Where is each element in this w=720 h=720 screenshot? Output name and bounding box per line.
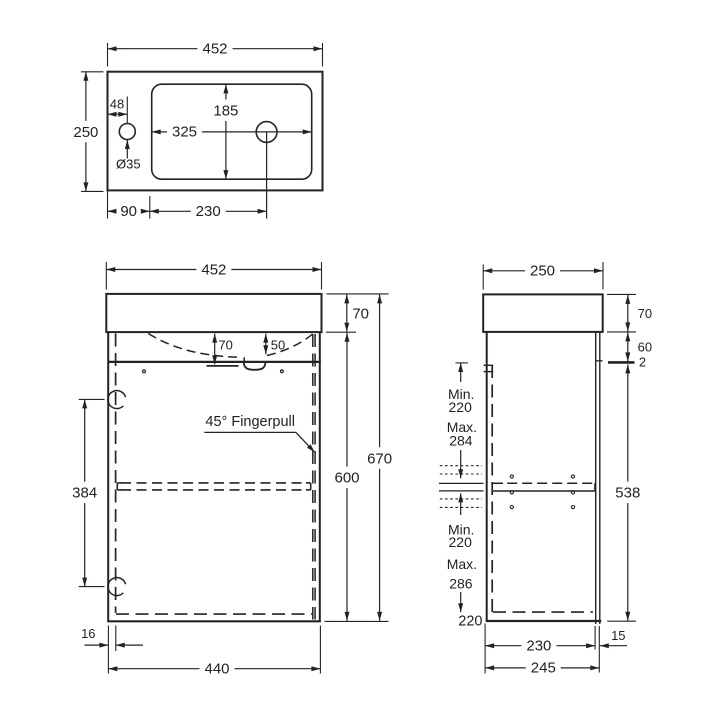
svg-text:230: 230 (196, 203, 221, 220)
svg-text:452: 452 (201, 261, 226, 278)
svg-text:440: 440 (204, 661, 229, 678)
svg-text:15: 15 (611, 628, 625, 643)
svg-text:220: 220 (449, 399, 473, 415)
svg-text:250: 250 (73, 124, 98, 141)
svg-text:60: 60 (638, 340, 652, 355)
svg-text:284: 284 (449, 433, 473, 449)
svg-text:384: 384 (72, 485, 97, 502)
svg-text:250: 250 (530, 263, 555, 280)
svg-text:230: 230 (526, 638, 551, 655)
svg-text:50: 50 (271, 338, 285, 353)
svg-text:670: 670 (367, 450, 392, 467)
svg-text:245: 245 (531, 660, 556, 677)
svg-text:16: 16 (81, 626, 95, 641)
svg-text:325: 325 (172, 124, 197, 141)
svg-text:Max.: Max. (447, 556, 477, 572)
svg-text:452: 452 (202, 41, 227, 58)
svg-text:Ø35: Ø35 (116, 157, 141, 172)
svg-text:90: 90 (120, 203, 137, 220)
svg-text:2: 2 (639, 355, 646, 370)
svg-text:70: 70 (218, 338, 232, 353)
svg-text:48: 48 (110, 97, 124, 112)
svg-text:286: 286 (449, 576, 473, 592)
svg-text:45° Fingerpull: 45° Fingerpull (205, 414, 295, 430)
svg-text:70: 70 (352, 306, 369, 323)
svg-text:600: 600 (334, 470, 359, 487)
svg-text:185: 185 (213, 103, 238, 120)
svg-text:538: 538 (615, 485, 640, 502)
svg-text:70: 70 (638, 306, 652, 321)
svg-text:220: 220 (449, 534, 473, 550)
svg-text:220: 220 (458, 613, 482, 629)
